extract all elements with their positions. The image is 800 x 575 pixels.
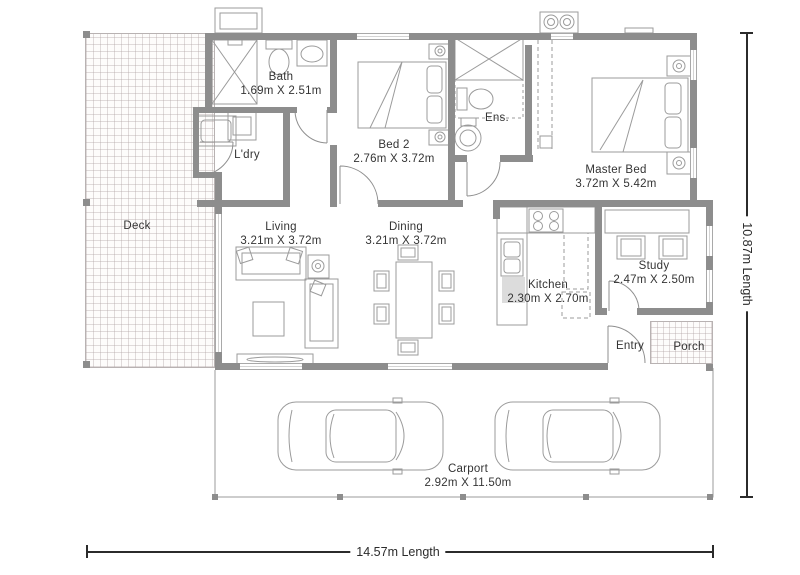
room-dims: 2.92m X 11.50m [424, 476, 511, 490]
room-label-carport: Carport 2.92m X 11.50m [424, 462, 511, 490]
room-name: Bath [240, 70, 321, 84]
hot-water-unit-icon [540, 12, 578, 33]
room-dims: 2.47m X 2.50m [613, 273, 694, 287]
dimension-tick [740, 496, 753, 498]
room-label-study: Study 2.47m X 2.50m [613, 259, 694, 287]
wall-segment [330, 145, 337, 207]
wall-segment [197, 200, 290, 207]
room-label-bed2: Bed 2 2.76m X 3.72m [353, 138, 434, 166]
bay-window-icon [215, 8, 262, 33]
bed2-furniture [358, 44, 451, 145]
wall-segment [595, 308, 607, 315]
window [357, 33, 409, 40]
living-furniture [236, 247, 338, 365]
room-dims: 3.21m X 3.72m [240, 234, 321, 248]
room-name: L'dry [234, 148, 260, 162]
dimension-tick [86, 545, 88, 558]
wall-segment [283, 113, 290, 207]
room-label-bath: Bath 1.69m X 2.51m [240, 70, 321, 98]
robe-shelving [538, 40, 552, 150]
wall-segment [448, 33, 455, 162]
wall-segment [595, 207, 602, 308]
room-label-living: Living 3.21m X 3.72m [240, 220, 321, 248]
window [240, 363, 302, 370]
wall-segment [493, 207, 500, 219]
room-name: Kitchen [507, 278, 588, 292]
kitchen-fixtures [497, 207, 595, 325]
room-dims: 1.69m X 2.51m [240, 84, 321, 98]
wall-segment [448, 162, 455, 207]
floor-plan: Deck Bath 1.69m X 2.51m L'dry Bed 2 2.76… [0, 0, 800, 575]
room-name: Study [613, 259, 694, 273]
room-name: Master Bed [575, 163, 656, 177]
room-label-dining: Dining 3.21m X 3.72m [365, 220, 446, 248]
window [706, 270, 713, 302]
room-label-deck: Deck [123, 219, 150, 233]
room-label-ldry: L'dry [234, 148, 260, 162]
wall-segment [215, 200, 222, 214]
room-label-entry: Entry [616, 339, 644, 353]
wall-segment [215, 352, 222, 370]
window [388, 363, 452, 370]
dimension-tick [740, 32, 753, 34]
room-name: Bed 2 [353, 138, 434, 152]
room-dims: 3.21m X 3.72m [365, 234, 446, 248]
study-furniture [605, 210, 689, 259]
car-icon [495, 398, 660, 474]
room-dims: 2.76m X 3.72m [353, 152, 434, 166]
wall-segment [500, 155, 533, 162]
room-name: Entry [616, 339, 644, 353]
room-label-porch: Porch [673, 340, 704, 354]
dimension-tick [712, 545, 714, 558]
wall-segment [193, 107, 199, 178]
dimension-label-right: 10.87m Length [739, 216, 755, 311]
window [551, 33, 573, 40]
room-name: Living [240, 220, 321, 234]
laundry-fixtures [196, 112, 256, 146]
wall-segment [330, 200, 337, 207]
room-name: Deck [123, 219, 150, 233]
wall-segment [493, 200, 713, 207]
plan-drawing-layer [0, 0, 800, 575]
wall-segment [448, 155, 467, 162]
ensuite-fixtures [455, 38, 523, 151]
room-name: Ens. [485, 111, 509, 125]
window [706, 226, 713, 256]
wall-segment [525, 45, 532, 157]
window [690, 50, 697, 80]
room-label-master: Master Bed 3.72m X 5.42m [575, 163, 656, 191]
room-label-ens: Ens. [485, 111, 509, 125]
room-name: Carport [424, 462, 511, 476]
wall-segment [205, 33, 212, 113]
wall-segment [330, 33, 337, 110]
window [215, 214, 222, 352]
window [690, 148, 697, 178]
room-name: Dining [365, 220, 446, 234]
master-bed-furniture [592, 56, 691, 174]
room-label-kitchen: Kitchen 2.30m X 2.70m [507, 278, 588, 306]
wall-segment [193, 107, 297, 113]
room-dims: 2.30m X 2.70m [507, 292, 588, 306]
room-dims: 3.72m X 5.42m [575, 177, 656, 191]
wall-segment [637, 308, 713, 315]
dimension-label-bottom: 14.57m Length [350, 544, 445, 560]
car-icon [278, 398, 443, 474]
dining-furniture [374, 245, 454, 355]
room-name: Porch [673, 340, 704, 354]
